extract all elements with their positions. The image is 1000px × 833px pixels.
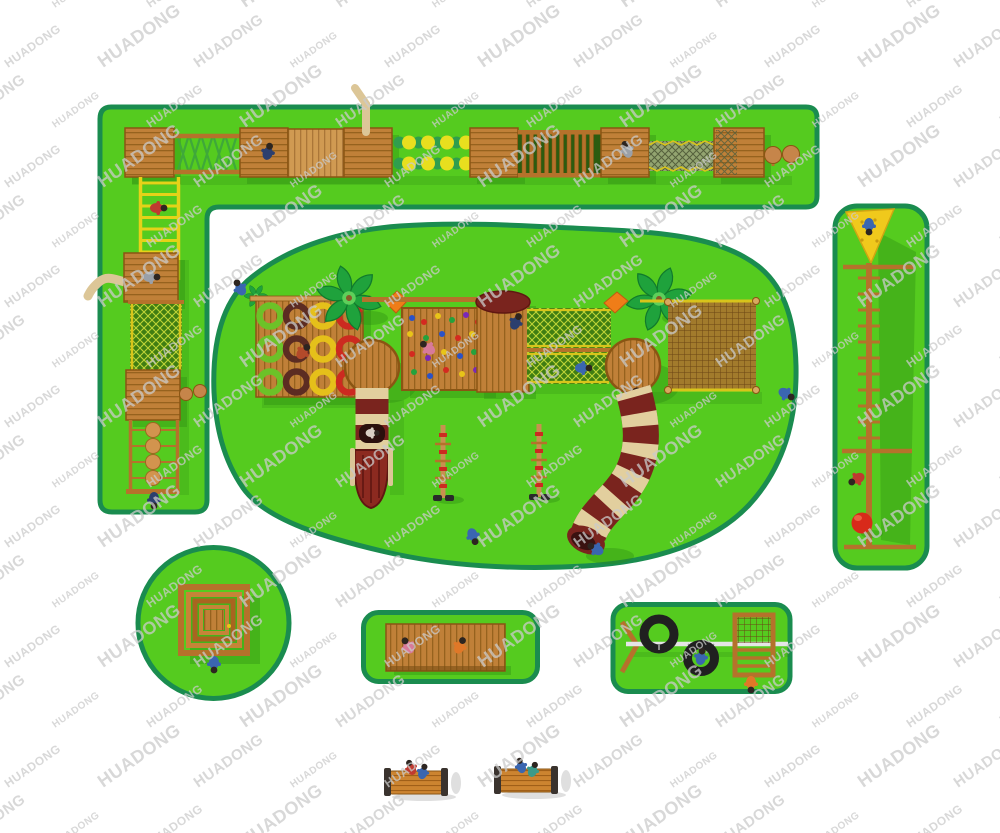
watermark-text: HUADONG — [854, 600, 945, 672]
watermark-text: HUADONG — [854, 720, 945, 792]
playground-scene: HUADONGHUADONGHUADONGHUADONGHUADONGHUADO… — [0, 0, 1000, 833]
watermark-text: HUADONG — [50, 330, 102, 371]
watermark-text: HUADONG — [2, 21, 64, 70]
watermark-text: HUADONG — [810, 0, 862, 10]
watermark-text: HUADONG — [996, 60, 1000, 132]
watermark-text: HUADONG — [810, 690, 862, 731]
watermark-text: HUADONG — [94, 720, 185, 792]
watermark-text: HUADONG — [996, 780, 1000, 833]
watermark-text: HUADONG — [713, 0, 789, 11]
watermark-text: HUADONG — [191, 11, 267, 71]
watermark-text: HUADONG — [430, 0, 482, 10]
watermark-text: HUADONG — [50, 570, 102, 611]
watermark-text: HUADONG — [762, 501, 824, 550]
watermark-text: HUADONG — [810, 570, 862, 611]
watermark-text: HUADONG — [996, 300, 1000, 372]
wood-ball — [180, 388, 193, 401]
watermark-text: HUADONG — [0, 671, 29, 731]
watermark-text: HUADONG — [333, 551, 409, 611]
watermark-text: HUADONG — [50, 450, 102, 491]
watermark-text: HUADONG — [50, 90, 102, 131]
watermark-text: HUADONG — [0, 431, 29, 491]
watermark-text: HUADONG — [762, 21, 824, 70]
watermark-text: HUADONG — [904, 801, 966, 833]
watermark-text: HUADONG — [996, 420, 1000, 492]
watermark-text: HUADONG — [810, 810, 862, 833]
watermark-text: HUADONG — [616, 0, 707, 11]
watermark-text: HUADONG — [996, 540, 1000, 612]
watermark-text: HUADONG — [236, 780, 327, 833]
watermark-text: HUADONG — [524, 801, 586, 833]
watermark-text: HUADONG — [430, 810, 482, 833]
watermark-text: HUADONG — [0, 551, 29, 611]
watermark-text: HUADONG — [571, 11, 647, 71]
watermark-text: HUADONG — [430, 690, 482, 731]
watermark-text: HUADONG — [430, 570, 482, 611]
watermark-text: HUADONG — [2, 621, 64, 670]
watermark-text: HUADONG — [996, 0, 1000, 11]
watermark-text: HUADONG — [951, 731, 1000, 791]
watermark-text: HUADONG — [854, 0, 945, 71]
watermark-text: HUADONG — [810, 90, 862, 131]
watermark-text: HUADONG — [0, 71, 29, 131]
watermark-text: HUADONG — [951, 491, 1000, 551]
watermark-text: HUADONG — [191, 731, 267, 791]
watermark-text: HUADONG — [50, 210, 102, 251]
watermark-text: HUADONG — [0, 311, 29, 371]
watermark-text: HUADONG — [0, 191, 29, 251]
watermark-text: HUADONG — [333, 791, 409, 833]
watermark-text: HUADONG — [2, 141, 64, 190]
watermark-text: HUADONG — [951, 611, 1000, 671]
watermark-text: HUADONG — [236, 0, 327, 11]
watermark-text: HUADONG — [2, 501, 64, 550]
watermark-text: HUADONG — [333, 0, 409, 11]
watermark-text: HUADONG — [2, 741, 64, 790]
watermark-text: HUADONG — [94, 0, 185, 71]
watermark-text: HUADONG — [616, 780, 707, 833]
watermark-text: HUADONG — [50, 0, 102, 10]
watermark-text: HUADONG — [762, 741, 824, 790]
watermark-text: HUADONG — [951, 251, 1000, 311]
watermark-text: HUADONG — [951, 11, 1000, 71]
watermark-text: HUADONG — [382, 21, 444, 70]
watermark-text: HUADONG — [571, 731, 647, 791]
watermark-text: HUADONG — [854, 120, 945, 192]
watermark-text: HUADONG — [2, 381, 64, 430]
watermark-text: HUADONG — [2, 261, 64, 310]
watermark-text: HUADONG — [713, 791, 789, 833]
watermark-text: HUADONG — [50, 810, 102, 833]
watermark-text: HUADONG — [0, 0, 29, 11]
watermark-text: HUADONG — [0, 791, 29, 833]
watermark-text: HUADONG — [951, 131, 1000, 191]
watermark-text: HUADONG — [474, 0, 565, 71]
watermark-text: HUADONG — [996, 660, 1000, 732]
playground-render-canvas: HUADONGHUADONGHUADONGHUADONGHUADONGHUADO… — [0, 0, 1000, 833]
wood-ball — [194, 385, 207, 398]
watermark-text: HUADONG — [951, 371, 1000, 431]
watermark-text: HUADONG — [996, 180, 1000, 252]
watermark-text: HUADONG — [50, 690, 102, 731]
watermark-text: HUADONG — [144, 801, 206, 833]
